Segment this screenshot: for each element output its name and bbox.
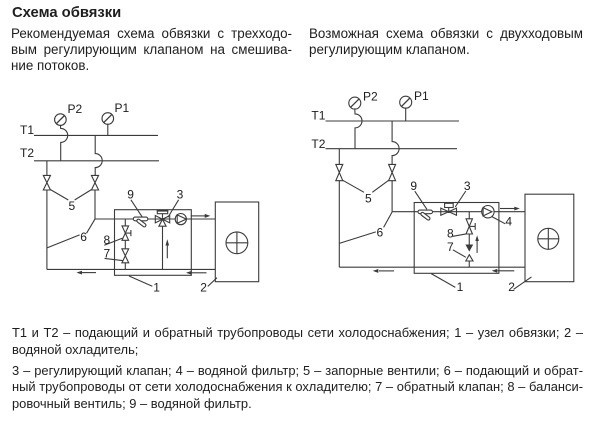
svg-text:Р1: Р1 bbox=[115, 101, 130, 115]
svg-text:5: 5 bbox=[69, 199, 76, 213]
svg-text:Р2: Р2 bbox=[68, 102, 83, 116]
svg-text:Т2: Т2 bbox=[311, 137, 325, 151]
svg-text:Т2: Т2 bbox=[20, 146, 34, 160]
svg-text:Т1: Т1 bbox=[20, 123, 34, 137]
svg-text:Т1: Т1 bbox=[311, 109, 325, 123]
svg-text:6: 6 bbox=[377, 225, 384, 239]
svg-text:6: 6 bbox=[80, 230, 87, 244]
svg-text:3: 3 bbox=[464, 179, 471, 193]
svg-text:7: 7 bbox=[447, 240, 454, 254]
svg-text:1: 1 bbox=[457, 280, 464, 294]
svg-text:3: 3 bbox=[177, 188, 184, 202]
svg-text:9: 9 bbox=[127, 188, 134, 202]
svg-text:Р2: Р2 bbox=[363, 90, 378, 104]
svg-text:8: 8 bbox=[447, 226, 454, 240]
svg-text:1: 1 bbox=[153, 280, 160, 294]
svg-text:8: 8 bbox=[104, 233, 111, 247]
svg-text:4: 4 bbox=[505, 215, 512, 229]
svg-text:7: 7 bbox=[104, 247, 111, 261]
svg-text:9: 9 bbox=[410, 179, 417, 193]
svg-text:2: 2 bbox=[200, 280, 207, 294]
svg-text:Р1: Р1 bbox=[414, 89, 429, 103]
svg-text:2: 2 bbox=[508, 280, 515, 294]
svg-text:5: 5 bbox=[365, 191, 372, 205]
